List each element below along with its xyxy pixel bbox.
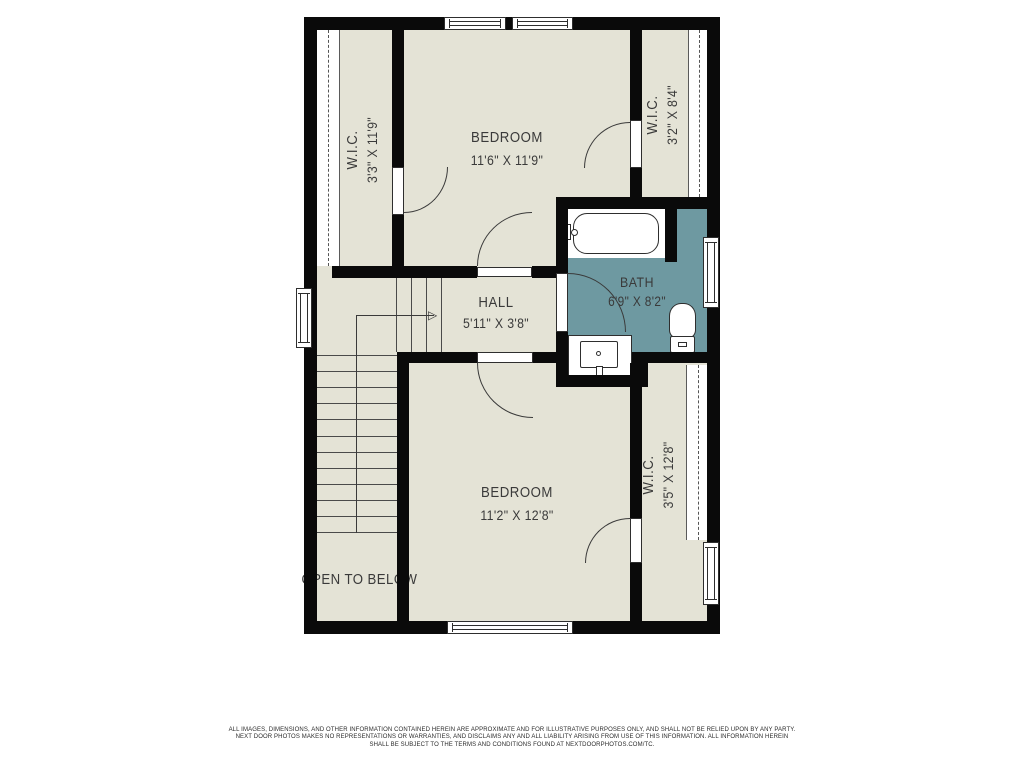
door-leaf xyxy=(477,352,533,363)
wall xyxy=(533,352,568,363)
stair-tread-line xyxy=(441,278,442,352)
wall xyxy=(392,30,404,167)
stair-tread-line xyxy=(317,532,397,533)
wall xyxy=(630,563,642,621)
window-glass-line xyxy=(300,293,308,343)
disclaimer-line: NEXT DOOR PHOTOS MAKES NO REPRESENTATION… xyxy=(0,734,1024,741)
room-dims: 6'9" X 8'2" xyxy=(593,294,681,309)
window xyxy=(703,237,719,308)
closet-shelf xyxy=(317,30,340,266)
disclaimer-line: SHALL BE SUBJECT TO THE TERMS AND CONDIT… xyxy=(0,742,1024,749)
stair-direction-arrow-icon: ▷ xyxy=(428,309,437,321)
room-dims: 11'6" X 11'9" xyxy=(437,152,578,168)
window xyxy=(447,621,573,634)
room-name: W.I.C. xyxy=(644,62,661,168)
door-leaf xyxy=(630,518,642,563)
toilet-flush-icon xyxy=(678,342,687,347)
stair-tread-line xyxy=(317,484,397,485)
window-glass-line xyxy=(707,547,715,600)
stair-tread-line xyxy=(317,371,397,372)
stair-tread-line xyxy=(317,436,397,437)
room-name: BEDROOM xyxy=(447,484,588,501)
room-dims: 3'2" X 8'4" xyxy=(664,62,680,168)
stair-tread-line xyxy=(317,500,397,501)
room-dims: 3'3" X 11'9" xyxy=(364,88,380,211)
wall xyxy=(397,352,409,621)
sink-drain-icon xyxy=(596,351,601,356)
room-label-bath: BATH 6'9" X 8'2" xyxy=(593,274,681,309)
room-name: BATH xyxy=(593,274,681,290)
closet-rod-line xyxy=(698,365,699,540)
open-to-below-label: OPEN TO BELOW xyxy=(301,571,410,588)
stair-direction-line xyxy=(356,315,357,533)
room-label-wic-bottom-right: W.I.C. 3'5" X 12'8" xyxy=(640,413,676,536)
room-name: HALL xyxy=(443,294,549,311)
room-name: W.I.C. xyxy=(344,88,361,211)
floor-plan-page: ▷ OPEN TO BELOW xyxy=(0,0,1024,768)
room-name: BEDROOM xyxy=(437,129,578,146)
door-leaf xyxy=(630,120,642,168)
wall xyxy=(556,197,707,209)
bathtub xyxy=(573,213,659,254)
wall xyxy=(630,363,642,518)
door-leaf xyxy=(556,273,568,332)
wall xyxy=(332,266,477,278)
window-glass-line xyxy=(707,242,715,303)
stair-tread-line xyxy=(317,468,397,469)
room-label-bedroom-top: BEDROOM 11'6" X 11'9" xyxy=(437,129,578,168)
wall xyxy=(665,209,677,262)
window-glass-line xyxy=(452,625,568,630)
stair-tread-line xyxy=(317,419,397,420)
closet-rod-line xyxy=(699,30,700,197)
wall xyxy=(630,30,642,120)
stair-tread-line xyxy=(317,403,397,404)
window xyxy=(703,542,719,605)
window xyxy=(296,288,312,348)
room-dims: 11'2" X 12'8" xyxy=(447,507,588,523)
tub-faucet-knob-icon xyxy=(571,229,578,236)
room-label-bedroom-bottom: BEDROOM 11'2" X 12'8" xyxy=(447,484,588,523)
room-label-wic-top-right: W.I.C. 3'2" X 8'4" xyxy=(644,62,680,168)
stair-tread-line xyxy=(317,355,397,356)
window xyxy=(512,17,573,30)
room-dims: 5'11" X 3'8" xyxy=(443,315,549,331)
stair-tread-line xyxy=(317,387,397,388)
closet-rod-line xyxy=(328,30,329,266)
room-label-wic-top-left: W.I.C. 3'3" X 11'9" xyxy=(344,88,380,211)
door-leaf xyxy=(477,267,532,277)
room-dims: 3'5" X 12'8" xyxy=(660,413,676,536)
stair-direction-line xyxy=(356,315,434,316)
room-label-hall: HALL 5'11" X 3'8" xyxy=(443,294,549,331)
room-name: W.I.C. xyxy=(640,413,657,536)
window xyxy=(444,17,506,30)
closet-shelf xyxy=(688,30,708,197)
wall xyxy=(556,197,568,273)
disclaimer: ALL IMAGES, DIMENSIONS, AND OTHER INFORM… xyxy=(0,727,1024,749)
door-leaf xyxy=(392,167,404,215)
window-glass-line xyxy=(449,21,501,26)
disclaimer-line: ALL IMAGES, DIMENSIONS, AND OTHER INFORM… xyxy=(0,727,1024,734)
stair-tread-line xyxy=(317,452,397,453)
stair-tread-line xyxy=(317,516,397,517)
wall xyxy=(397,352,477,363)
closet-shelf xyxy=(686,365,708,540)
window-glass-line xyxy=(517,21,568,26)
